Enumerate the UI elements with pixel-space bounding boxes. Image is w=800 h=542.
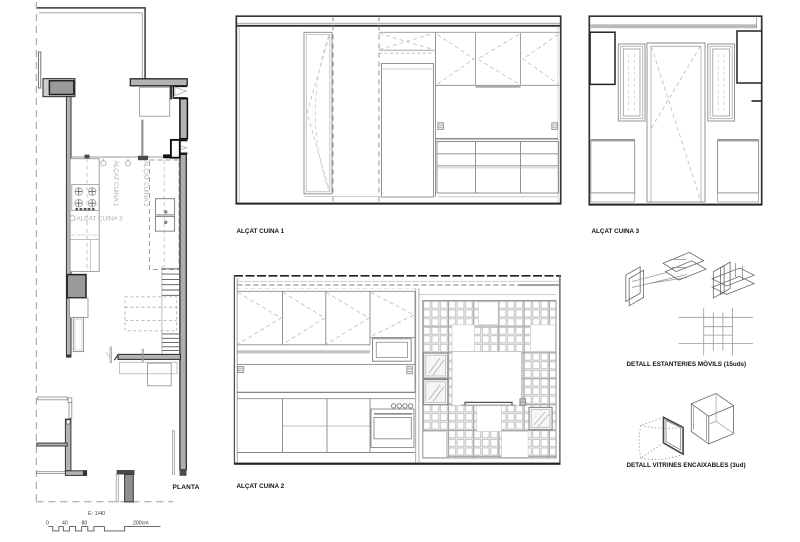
- svg-text:ALÇAT CUINA 3: ALÇAT CUINA 3: [592, 228, 640, 235]
- svg-text:ALÇAT CUINA 2: ALÇAT CUINA 2: [237, 483, 285, 490]
- svg-text:E: 1/40: E: 1/40: [88, 511, 105, 517]
- svg-text:alt. taulell 90 aprox.: alt. taulell 90 aprox.: [71, 233, 102, 237]
- svg-text:ALÇAT CUINA 1: ALÇAT CUINA 1: [112, 161, 119, 207]
- svg-text:ALÇAT CUINA 1: ALÇAT CUINA 1: [237, 228, 285, 235]
- svg-text:80: 80: [82, 521, 88, 527]
- svg-text:DETALL ESTANTERIES MÒVILS (15u: DETALL ESTANTERIES MÒVILS (15uds): [627, 359, 747, 368]
- svg-text:0: 0: [46, 521, 49, 527]
- svg-text:DETALL VITRINES ENCAIXABLES (3: DETALL VITRINES ENCAIXABLES (3ud): [627, 462, 746, 469]
- svg-text:200cm: 200cm: [133, 521, 149, 527]
- svg-text:ALÇAT CUINA 2: ALÇAT CUINA 2: [142, 161, 149, 207]
- svg-text:40: 40: [62, 521, 68, 527]
- svg-text:PLANTA: PLANTA: [173, 484, 200, 491]
- svg-text:ALÇAT CUINA 3: ALÇAT CUINA 3: [77, 216, 123, 223]
